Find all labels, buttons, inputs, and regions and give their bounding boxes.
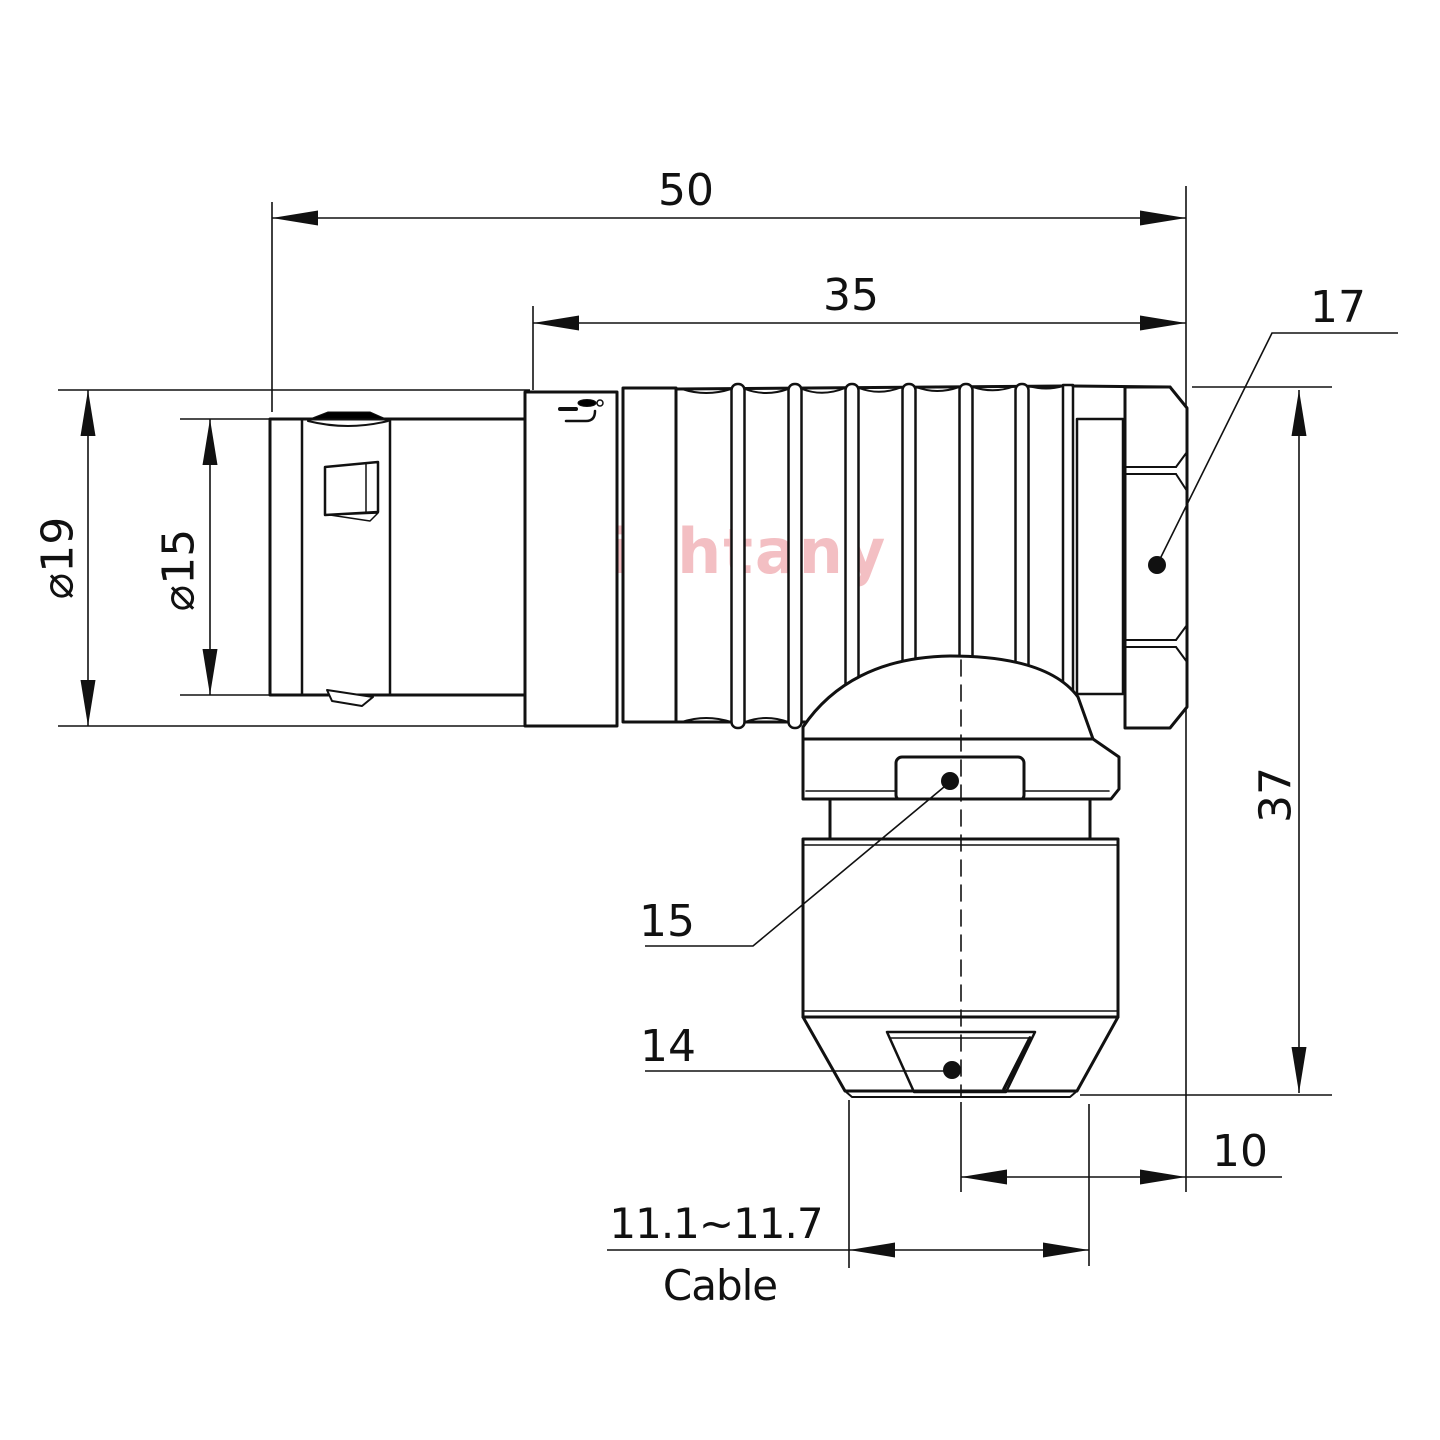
latch-tooth (310, 412, 386, 419)
neck-section (1077, 419, 1123, 694)
dim-label-17: 17 (1310, 282, 1366, 333)
front-plug (270, 412, 525, 706)
dim-label-50: 50 (658, 165, 714, 216)
dim-label-cable-range: 11.1~11.7 (609, 1199, 822, 1248)
dim-overall-length-50 (272, 202, 1186, 412)
connector-body (270, 384, 1187, 1097)
release-sleeve (525, 392, 617, 726)
dimension-layer (58, 202, 1398, 1268)
technical-drawing-page: Lightany (0, 0, 1440, 1440)
latch-window (325, 462, 378, 515)
dim-label-10: 10 (1212, 1126, 1268, 1177)
dim-label-cable: Cable (663, 1261, 777, 1310)
dim-label-35: 35 (823, 270, 879, 321)
sleeve-band (623, 388, 676, 722)
dim-label-14: 14 (640, 1021, 696, 1072)
skirt-tab (896, 757, 1024, 801)
connector-technical-drawing: Lightany (0, 0, 1440, 1440)
dim-label-dia15: ⌀15 (153, 529, 204, 611)
dim-label-37: 37 (1250, 767, 1301, 823)
gland-ring (830, 799, 1090, 839)
dim-label-dia19: ⌀19 (32, 517, 83, 599)
dim-label-15: 15 (639, 896, 695, 947)
